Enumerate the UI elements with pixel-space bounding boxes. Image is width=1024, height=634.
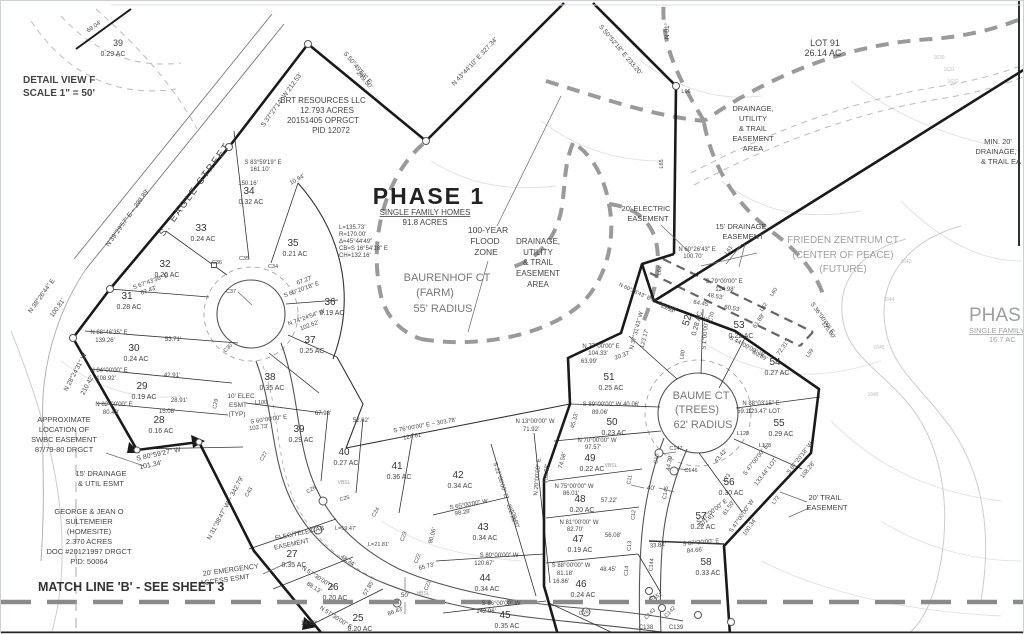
lot-acreage: 0.22 AC [729, 333, 754, 340]
map-label: ZONE [474, 247, 498, 257]
map-label: C147 [669, 446, 682, 452]
map-label: 42.91' [164, 373, 180, 379]
map-label: 56.08' [605, 533, 621, 539]
map-label: 88.13' [305, 581, 322, 595]
map-label: DOC #20121997 DRGCT [46, 547, 131, 556]
map-label: 20151405 OPRGCT [287, 116, 359, 125]
map-label: 57.22' [601, 498, 617, 504]
electric-esmt-note: 20' ELECTRIC [622, 204, 672, 213]
lot-number: 46 [575, 579, 587, 590]
map-label: 50' [401, 592, 409, 599]
map-label: (CENTER OF PEACE) [792, 250, 893, 261]
map-label: 40' [647, 485, 655, 492]
map-label: 142.96' [476, 609, 496, 615]
lot-acreage: 0.32 AC [239, 199, 264, 206]
trail-lines [31, 9, 1024, 185]
map-label: Δ=45°44'49" [339, 239, 372, 245]
map-label: 100.34' [742, 518, 758, 537]
lot-number: 53 [733, 320, 745, 331]
map-label: C21 [424, 580, 433, 592]
owner-sultemeier: GEORGE & JEAN O [54, 507, 123, 516]
map-label: 20.37' [614, 350, 631, 361]
map-label: 62' RADIUS [674, 419, 733, 431]
plat-sheet: DETAIL VIEW FSCALE 1" = 50'390.29 AC68.0… [0, 0, 1024, 634]
map-label: CB=S 16°54'18" E [339, 246, 388, 252]
lot-acreage: 0.23 AC [602, 430, 627, 437]
map-label: (TYP) [229, 411, 246, 418]
swbc-esmt-note: APPROXIMATE [37, 415, 91, 424]
lot-acreage: 0.20 AC [348, 626, 373, 633]
map-label: C35 [239, 256, 249, 262]
map-label: N 43°44'10" E 327.34' [450, 36, 499, 88]
map-label: C144 [648, 558, 655, 572]
map-label: & TRAIL [739, 124, 767, 133]
map-label: 14.09' [301, 621, 317, 627]
map-label: 16.86' [553, 579, 569, 585]
map-label: EASEMENT [516, 269, 560, 278]
map-label: 52.62' [353, 418, 369, 424]
lot-acreage: 0.27 AC [334, 460, 359, 467]
lot-acreage: 0.29 AC [289, 437, 314, 444]
map-label: ESMT [229, 402, 247, 409]
court-name-baurenhof: BAURENHOF CT [404, 272, 491, 284]
map-label: 63.99' [581, 359, 597, 365]
map-label: & UTIL ESMT [78, 479, 124, 488]
map-label: CH=132.16' [339, 253, 371, 259]
map-label: L=59.47' [335, 526, 356, 532]
lot-number: 28 [153, 415, 165, 426]
map-label: 1632 [947, 79, 958, 85]
lot-number: 36 [324, 297, 336, 308]
map-label: 210.42' [80, 374, 96, 396]
map-label: C145 [662, 486, 670, 500]
lot-number: 31 [121, 291, 133, 302]
lot-number: 40 [338, 447, 350, 458]
lot-acreage: 0.24 AC [124, 356, 149, 363]
map-label: & TRAIL EA [981, 157, 1021, 166]
map-label: N 77°00'00" E [582, 344, 619, 350]
map-label: 43.42' [714, 448, 729, 464]
lot-acreage: 0.35 AC [260, 385, 285, 392]
easement-area-note-center: DRAINAGE, [516, 237, 560, 246]
map-label: & TRAIL [523, 258, 554, 267]
map-label: 102.73' [249, 424, 269, 433]
phase-1-title: PHASE 1 [373, 183, 485, 209]
map-label: L66 [681, 89, 690, 95]
map-label: 1631 [943, 67, 954, 73]
lot-acreage: 0.22 AC [691, 524, 716, 531]
map-label: SWBC EASEMENT [31, 435, 97, 444]
map-label: FLOOD [470, 236, 499, 246]
lot-number: 29 [136, 381, 148, 392]
lot-number: 25 [352, 613, 364, 624]
match-line [1, 5, 1024, 634]
map-label: 57.85' [362, 580, 375, 597]
lot-number: 55 [773, 418, 785, 429]
map-label: L64 [656, 266, 664, 276]
lot-number: 44 [479, 573, 491, 584]
parcel-boundary [73, 1, 1024, 634]
owner-brt: BRT RESOURCES LLC [280, 96, 366, 105]
map-label: AREA [743, 144, 763, 153]
lot-number: 32 [159, 259, 171, 270]
lot-number: 49 [584, 453, 596, 464]
court-name-frieden: FRIEDEN ZENTRUM CT [787, 235, 899, 246]
map-label: N 84°00'00" E [90, 368, 127, 374]
lot-acreage: 0.21 AC [283, 251, 308, 258]
map-label: 1646 [867, 392, 878, 398]
min-trail-esmt-note: MIN. 20' [984, 137, 1012, 146]
map-label: N 70°00'00" W [577, 438, 616, 444]
map-label: C22 [414, 553, 423, 565]
map-label: 74.58' [558, 452, 568, 469]
lot-number: 35 [287, 238, 299, 249]
map-label: N 13°00'00" W [515, 419, 554, 425]
map-label: SULTEMEIER [65, 517, 113, 526]
drainage-util-esmt-note: 15' DRAINAGE [75, 469, 126, 478]
map-label: N 39°29'57" E ~ 299.89' [104, 188, 151, 249]
lot-acreage: 0.20 AC [570, 507, 595, 514]
map-label: DRAINAGE, [975, 147, 1016, 156]
lot-acreage: 0.34 AC [448, 483, 473, 490]
map-label: 1630 [933, 55, 944, 61]
lot-number: 43 [477, 522, 489, 533]
map-label: L60 [769, 287, 779, 298]
phase-1-subtitle: SINGLE FAMILY HOMES [380, 208, 471, 217]
map-label: L62 [759, 302, 769, 313]
map-label: 1644 [883, 297, 894, 303]
phase-1-acres: 91.8 ACRES [403, 218, 448, 227]
map-label: C12 [631, 510, 638, 521]
map-label: C14 [624, 566, 631, 577]
map-label: 2.370 ACRES [66, 537, 112, 546]
lot-acreage: 0.29 AC [769, 431, 794, 438]
flood-zone-boundary [377, 1, 1024, 342]
map-label: C43 [244, 487, 254, 499]
map-label: C29 [212, 398, 220, 409]
map-label: C34 [268, 264, 278, 270]
lot-number: 34 [243, 186, 255, 197]
map-label: 72.31' [776, 340, 790, 357]
map-label: (FUTURE) [819, 264, 866, 275]
map-label: 80.40' [103, 410, 119, 416]
lot-number: 26 [327, 582, 339, 593]
lot-number: 58 [700, 557, 712, 568]
map-label: S 79°00'00" E [705, 279, 742, 285]
plat-map: DETAIL VIEW FSCALE 1" = 50'390.29 AC68.0… [1, 1, 1024, 634]
map-label: L80 [679, 350, 687, 360]
map-label: 1643 [900, 259, 911, 265]
map-label: C13 [627, 541, 634, 552]
map-label: 108.92' [96, 376, 116, 382]
lot-number: 30 [128, 343, 140, 354]
map-label: UTILITY [739, 114, 767, 123]
map-label: L72 [771, 495, 781, 506]
map-label: 87/79-80 DRGCT [35, 445, 94, 454]
map-label: S 87°30'00" E [682, 538, 719, 547]
lot-number: 42 [452, 470, 464, 481]
map-label: HBSL [416, 591, 429, 597]
lot-acreage: 0.19 AC [568, 547, 593, 554]
map-label: 97.57' [585, 445, 601, 451]
map-label: 71.92' [523, 427, 539, 433]
lot-acreage: 0.19 AC [320, 310, 345, 317]
lot-number: 37 [304, 335, 316, 346]
lot-number: 54 [769, 357, 781, 368]
drainage-esmt-15-note: 15' DRAINAGE [715, 222, 766, 231]
map-label: LOCATION OF [39, 425, 90, 434]
map-label: 81.18' [557, 571, 573, 577]
curve-table: L=135.73' [339, 225, 365, 231]
map-label: L65 [659, 159, 665, 168]
map-label: 59.11' [737, 409, 753, 415]
map-label: C37 [226, 289, 236, 295]
map-label: 0.29 AC [101, 51, 126, 58]
map-label: 120.67' [474, 561, 494, 567]
map-label: VBSL [605, 463, 618, 469]
map-label: C146 [684, 468, 697, 474]
map-label: S 80°00'00" W [480, 553, 519, 559]
map-label: (TREES) [675, 404, 719, 416]
lot-acreage: 0.33 AC [696, 570, 721, 577]
lot-91: LOT 91 [810, 38, 840, 48]
map-label: R=170.00' [339, 232, 366, 238]
map-labels: DETAIL VIEW FSCALE 1" = 50'390.29 AC68.0… [23, 20, 1024, 633]
lot-acreage: 0.35 AC [282, 562, 307, 569]
lot-number: 50 [606, 417, 618, 428]
lot-acreage: 0.24 AC [191, 236, 216, 243]
lot-acreage: 0.34 AC [475, 586, 500, 593]
map-label: 67.98' [315, 411, 331, 417]
map-label: L100 [255, 400, 267, 406]
lot-number: 45 [499, 610, 511, 621]
map-label: L=21.81' [368, 542, 389, 548]
map-label: EASEMENT [806, 503, 848, 512]
map-label: UTILITY [523, 248, 553, 257]
map-label: EASEMENT [627, 214, 669, 223]
lot-number: 41 [391, 461, 403, 472]
detail-view-scale: SCALE 1" = 50' [23, 88, 95, 99]
map-label: S 60°00'00" E [250, 414, 288, 425]
map-label: 83.53' [659, 303, 675, 315]
map-label: 100.70' [683, 254, 703, 260]
map-label: 1645 [873, 345, 884, 351]
map-label: C25 [339, 495, 350, 503]
lot-acreage: 0.30 AC [719, 490, 744, 497]
flood-zone-label: 100-YEAR [468, 225, 508, 235]
map-label: 86.43' [387, 606, 404, 617]
lot-acreage: 0.25 AC [300, 348, 325, 355]
map-label: 33.84' [650, 542, 667, 549]
lot-number: 48 [574, 494, 586, 505]
lot-acreage: 0.36 AC [387, 474, 412, 481]
map-label: N 01° [663, 22, 671, 39]
lot-acreage: 0.35 AC [495, 623, 520, 630]
map-label: 82.70' [567, 527, 583, 533]
lot-number: 38 [264, 372, 276, 383]
map-label: 45.33' [570, 412, 580, 429]
lot-acreage: 0.20 AC [323, 595, 348, 602]
map-label: C11 [626, 475, 634, 486]
lot-number: 57 [695, 511, 707, 522]
lot-number: 39 [293, 424, 305, 435]
map-label: 161.10' [250, 167, 270, 173]
map-label: S 89°00'00" W 40.06' [583, 402, 640, 408]
map-label: 90.06' [428, 527, 438, 544]
map-label: 26.14 AC [804, 48, 842, 58]
map-label: 139.26' [95, 338, 115, 344]
map-label: 55' RADIUS [414, 303, 473, 315]
map-label: L59 [805, 348, 815, 359]
map-label: PID 12072 [312, 126, 350, 135]
map-label: N 88°46'35" E [90, 330, 127, 336]
detail-view-title: DETAIL VIEW F [23, 75, 95, 86]
map-label: 89.06' [592, 410, 608, 416]
map-label: N 82°00'00" E [95, 402, 132, 408]
map-label: 84.66' [687, 547, 704, 554]
map-label: N 88°03'15" E [742, 401, 779, 407]
map-label: N 81°00'00" W [559, 520, 598, 526]
map-label: AREA [527, 280, 549, 289]
phase-2-title: PHAS [969, 305, 1021, 326]
lot-number: 51 [603, 372, 615, 383]
lot-acreage: 0.34 AC [473, 535, 498, 542]
map-label: C30 [223, 343, 234, 354]
map-label: 28.91' [171, 398, 187, 404]
map-label: VBSL [338, 480, 351, 486]
map-label: SINGLE FAMILY [969, 326, 1024, 335]
trail-esmt-20-note: 20' TRAIL [809, 493, 842, 502]
match-line-note: MATCH LINE 'B' - SEE SHEET 3 [38, 580, 224, 594]
map-label: 124.61' [403, 432, 423, 441]
map-label: 53.71' [165, 337, 181, 343]
map-label: S 86°00'00" W [482, 601, 521, 607]
map-label: C27 [259, 451, 269, 463]
lot-acreage: 0.25 AC [599, 385, 624, 392]
map-label: PID: 50064 [70, 557, 108, 566]
map-label: N 31°38'47" W ~ 342.79' [205, 475, 245, 541]
map-label: 39 [113, 38, 123, 48]
lot-acreage: 0.27 AC [765, 370, 790, 377]
map-label: (FARM) [416, 287, 454, 299]
map-label: C10 [653, 453, 661, 464]
lot-acreage: 0.20 AC [155, 272, 180, 279]
map-label: L129 [737, 431, 749, 437]
map-label: EASEMENT [732, 134, 774, 143]
map-label: C24 [371, 507, 381, 519]
court-name-baume: BAUME CT [673, 390, 730, 402]
map-label: C36 [212, 260, 222, 266]
lot-acreage: 0.19 AC [132, 394, 157, 401]
map-label: C138 [639, 625, 654, 631]
elec-esmt-typ-note: 10' ELEC [227, 393, 255, 400]
lot-number: 27 [286, 549, 298, 560]
map-label: 16.7 AC [989, 335, 1016, 344]
map-label: (HOMESITE) [67, 527, 112, 536]
map-label: 65.73' [418, 562, 435, 572]
map-label: C139 [669, 625, 684, 631]
map-label: C143 [644, 608, 658, 622]
map-label: N 75°00'00" W [554, 484, 593, 490]
lot-acreage: 0.24 AC [571, 592, 596, 599]
map-label: 123.17' [640, 329, 651, 349]
lot-acreage: 0.16 AC [149, 428, 174, 435]
map-label: N 60°26'43" E [678, 247, 715, 253]
map-label: 48.45' [600, 567, 616, 573]
lot-number: 33 [195, 223, 207, 234]
lot-acreage: 0.28 AC [117, 304, 142, 311]
contour-lines [61, 61, 1021, 616]
map-label: 104.33' [588, 351, 608, 357]
map-label: 48.53' [707, 293, 724, 302]
map-label: N 20°00'00" E [533, 458, 542, 496]
map-label: S 76°00'00" E ~ 303.78' [393, 418, 456, 435]
map-label: 12.793 ACRES [300, 106, 354, 115]
lot-acreage: 0.22 AC [580, 466, 605, 473]
map-label: EASEMENT [722, 232, 764, 241]
easement-area-note-ne: DRAINAGE, [732, 104, 773, 113]
map-label: L61 [724, 245, 734, 256]
map-label: S 83°59'19" E [244, 160, 281, 166]
lot-number: 47 [572, 534, 584, 545]
map-label: 124.98' [715, 287, 735, 293]
lot-number: 56 [723, 477, 735, 488]
map-label: S 88°00'00" W [552, 563, 591, 569]
